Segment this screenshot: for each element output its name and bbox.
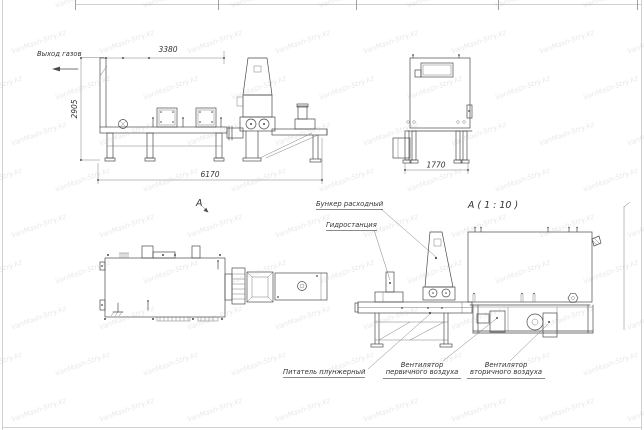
dimension-3380: 3380: [105, 45, 225, 64]
gas-duct: [100, 58, 107, 127]
drawing-sheet: VanMash-Stry.kzVanMash-Stry.kzVanMash-St…: [0, 0, 644, 430]
furnace-body-detail: [468, 227, 601, 305]
platform-frame: [100, 127, 227, 161]
plan-main-body: [100, 246, 225, 317]
primary-air-fan: [477, 311, 505, 332]
plan-inner-symbols: [111, 260, 219, 316]
watermark-text: VanMash-Stry.kz: [54, 350, 111, 377]
dim-3380-text: 3380: [158, 45, 177, 54]
plunger-feeder-label: Питатель плунжерный: [283, 369, 365, 378]
gas-outlet-label: Выход газов: [37, 51, 82, 59]
secondary-air-fan-label: Вентилятор вторичного воздуха: [467, 362, 545, 379]
gas-outlet-arrow: [52, 67, 78, 72]
sheet-border-bottom: [2, 427, 642, 428]
dim-2905-text: 2905: [70, 99, 79, 118]
feed-hopper-label: Бункер расходный: [316, 201, 383, 210]
watermark-text: VanMash-Stry.kz: [98, 396, 155, 423]
watermark-text: VanMash-Stry.kz: [0, 350, 23, 377]
plan-feeder-assembly: [225, 268, 327, 304]
watermark-text: VanMash-Stry.kz: [494, 166, 551, 193]
watermark-text: VanMash-Stry.kz: [274, 396, 331, 423]
watermark-text: VanMash-Stry.kz: [142, 350, 199, 377]
watermark-text: VanMash-Stry.kz: [10, 304, 67, 331]
plan-bottom-hatch: [104, 317, 223, 321]
discharge-conveyor: [260, 104, 327, 162]
watermark-text: VanMash-Stry.kz: [0, 258, 23, 285]
watermark-text: VanMash-Stry.kz: [0, 0, 23, 10]
print-mark: [637, 0, 638, 10]
equipment-box-1: [157, 108, 177, 127]
watermark-text: VanMash-Stry.kz: [10, 396, 67, 423]
sheet-border-right: [641, 0, 642, 430]
watermark-text: VanMash-Stry.kz: [538, 396, 595, 423]
furnace-support-frame: [473, 305, 593, 333]
view-a-label: А: [195, 198, 203, 209]
print-mark: [498, 0, 499, 10]
dimension-1770: 1770: [404, 161, 469, 175]
sheet-border-top: [75, 4, 642, 5]
equipment-box-2: [196, 108, 216, 127]
furnace-body-end: [407, 54, 472, 131]
feed-hopper: [423, 232, 455, 300]
watermark-text: VanMash-Stry.kz: [582, 74, 639, 101]
dimension-2905: 2905: [70, 57, 104, 161]
hydraulic-station-label: Гидростанция: [326, 222, 377, 231]
print-mark: [75, 0, 76, 10]
watermark-text: VanMash-Stry.kz: [582, 166, 639, 193]
detail-view-title: А ( 1 : 10 ): [467, 200, 518, 211]
plunger-feeder: [355, 302, 472, 313]
print-mark: [356, 0, 357, 10]
end-view-drawing: 1770: [388, 50, 484, 178]
watermark-text: VanMash-Stry.kz: [0, 74, 23, 101]
watermark-text: VanMash-Stry.kz: [186, 396, 243, 423]
side-view-drawing: 3380 2905 6170: [30, 40, 345, 195]
secondary-air-fan: [527, 313, 557, 337]
plan-view-drawing: А: [95, 192, 335, 332]
view-a-marker: А: [195, 198, 209, 213]
watermark-text: VanMash-Stry.kz: [538, 120, 595, 147]
watermark-text: VanMash-Stry.kz: [230, 350, 287, 377]
end-view-side-box: [393, 138, 410, 158]
dim-1770-text: 1770: [426, 161, 445, 170]
dim-6170-text: 6170: [200, 170, 219, 179]
feeder-tube-side: [227, 126, 243, 140]
break-line: [624, 202, 630, 330]
watermark-text: VanMash-Stry.kz: [10, 212, 67, 239]
watermark-text: VanMash-Stry.kz: [494, 74, 551, 101]
chimney-hopper: [243, 58, 272, 95]
end-view-legs: [403, 131, 469, 163]
watermark-text: VanMash-Stry.kz: [362, 396, 419, 423]
watermark-text: VanMash-Stry.kz: [538, 28, 595, 55]
primary-air-fan-label: Вентилятор первичного воздуха: [383, 362, 461, 379]
watermark-text: VanMash-Stry.kz: [0, 166, 23, 193]
sheet-border-left: [2, 0, 3, 430]
dimension-6170: 6170: [97, 138, 323, 184]
callout-leader-lines: [368, 209, 548, 369]
feeder-support-truss: [371, 313, 452, 347]
print-mark: [218, 0, 219, 10]
watermark-text: VanMash-Stry.kz: [450, 396, 507, 423]
